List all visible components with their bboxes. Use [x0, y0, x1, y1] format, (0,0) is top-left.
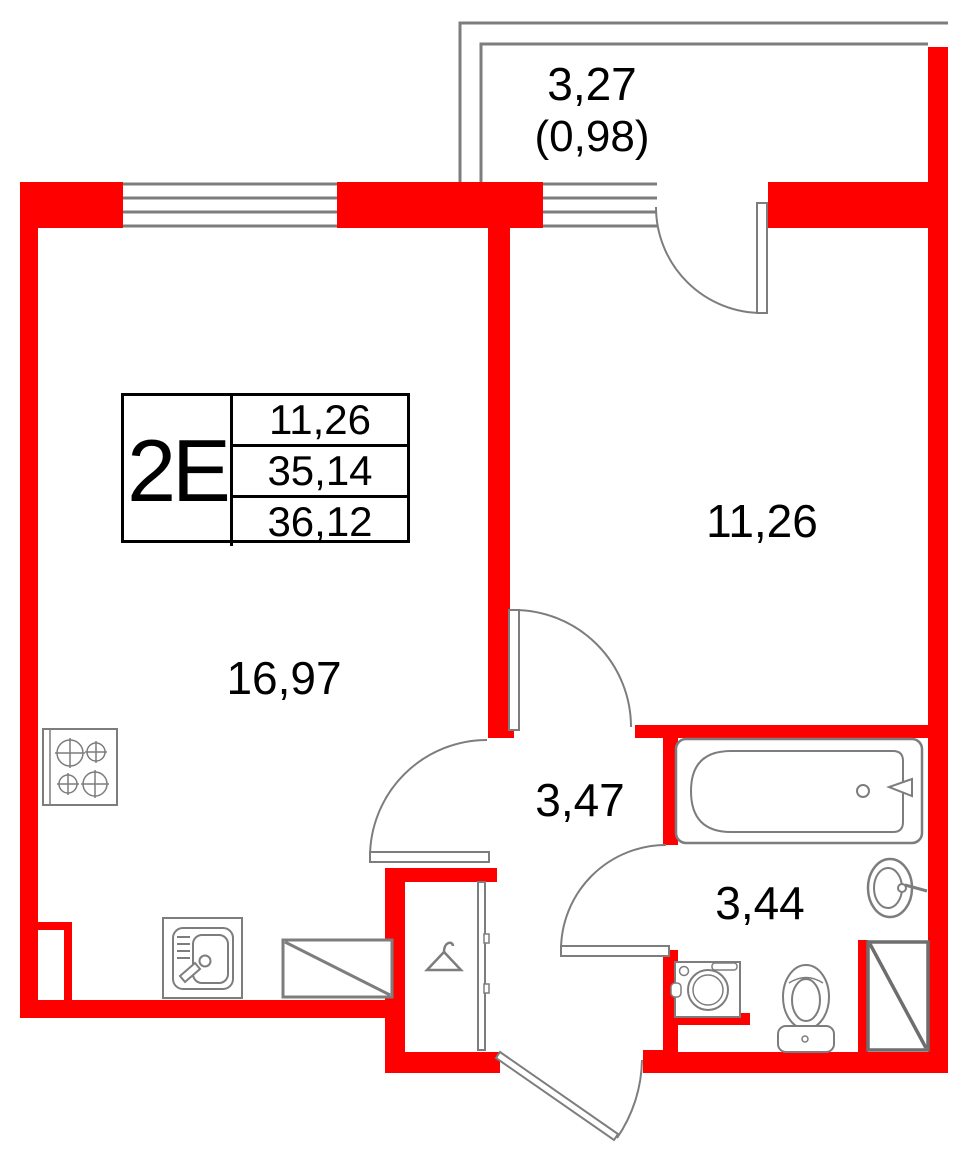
closet-handle-bottom	[484, 984, 489, 993]
bathroom-door-leaf	[561, 946, 669, 956]
hanger-hook-icon	[444, 943, 453, 952]
bathtub-icon	[676, 739, 922, 843]
unit-type-label: 2Е	[124, 396, 233, 546]
wall-closet-top	[393, 868, 497, 882]
bedroom-door	[509, 610, 631, 730]
hall-area-label: 3,47	[535, 773, 625, 827]
wall-kitchen-bottom	[20, 1000, 405, 1018]
wall-right	[928, 47, 948, 1073]
closet-handle-top	[484, 934, 489, 943]
floor-plan-drawing	[0, 0, 968, 1172]
balcony-door	[656, 203, 767, 313]
toilet-icon	[778, 965, 834, 1052]
window-balcony	[543, 184, 657, 226]
closet-front	[478, 882, 485, 1050]
unit-living-area: 35,14	[233, 447, 407, 498]
wall-top-b	[337, 182, 543, 228]
wall-bedroom-bath	[635, 725, 948, 738]
living-kitchen-area-label: 16,97	[226, 651, 341, 705]
unit-rooms-area: 11,26	[233, 396, 407, 447]
balcony-area-label: 3,27	[547, 57, 637, 111]
kitchen-door	[370, 740, 489, 862]
wall-niche-right	[64, 922, 72, 1000]
washing-machine-icon	[671, 962, 740, 1017]
entrance-door-leaf	[496, 1052, 618, 1140]
closet	[427, 882, 489, 1050]
balcony-door-arc	[656, 207, 762, 313]
wall-closet-bottom	[405, 1052, 500, 1073]
kitchen-counter-icon	[283, 940, 392, 997]
balcony-outline	[460, 23, 948, 183]
wall-top-a	[20, 182, 123, 228]
wall-divider	[488, 228, 510, 725]
bedroom-door-leaf	[509, 610, 519, 730]
balcony-coeff-label: (0,98)	[535, 112, 650, 162]
wall-left	[20, 182, 38, 1018]
bathroom-door-arc	[561, 845, 666, 950]
kitchen-door-leaf	[370, 852, 489, 862]
bathroom-area-label: 3,44	[715, 876, 805, 930]
entrance-door	[496, 1052, 642, 1140]
balcony-door-leaf	[757, 203, 767, 313]
floor-plan: 3,27 (0,98) 16,97 11,26 3,47 3,44 2Е 11,…	[0, 0, 968, 1172]
bathroom-door	[561, 845, 669, 956]
bedroom-door-arc	[514, 610, 631, 727]
window-kitchen	[123, 184, 337, 226]
bathroom-cabinet-icon	[868, 942, 928, 1050]
entrance-door-arc	[617, 1060, 642, 1138]
kitchen-door-arc	[370, 740, 487, 857]
wall-top-c	[768, 182, 928, 228]
washbasin-icon	[868, 859, 927, 917]
kitchen-sink-icon	[163, 918, 242, 998]
bedroom-area-label: 11,26	[706, 494, 818, 548]
stove-icon	[43, 729, 117, 805]
wall-bath-bottom	[643, 1052, 948, 1073]
hanger-icon	[427, 952, 461, 970]
unit-total-area: 36,12	[233, 498, 407, 546]
unit-info-table: 2Е 11,26 35,14 36,12	[121, 393, 410, 543]
wall-bath-corner	[643, 1050, 678, 1073]
